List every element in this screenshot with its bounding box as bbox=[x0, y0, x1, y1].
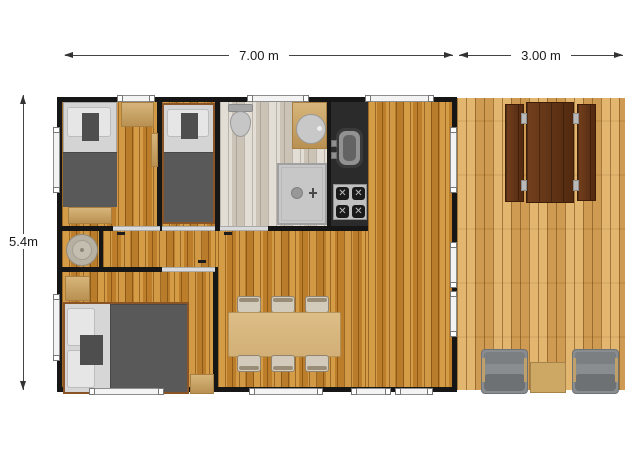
living-floor-right bbox=[368, 102, 452, 387]
dining-chair bbox=[237, 296, 261, 313]
burner bbox=[352, 205, 365, 218]
wall-closet bbox=[99, 231, 103, 267]
wall-table bbox=[121, 102, 154, 127]
window-bottom-bedroom-double bbox=[90, 388, 163, 395]
stove-4-burner bbox=[333, 184, 367, 220]
nightstand bbox=[190, 374, 214, 394]
picnic-bracket bbox=[573, 113, 579, 124]
door-bathroom bbox=[220, 226, 268, 231]
armchair-back bbox=[575, 352, 616, 364]
dimension-label-height: 5.4m bbox=[1, 234, 46, 249]
arrow-up-icon bbox=[20, 95, 26, 104]
water-heater-cap bbox=[80, 248, 84, 252]
glazed-door-right-top bbox=[450, 128, 457, 192]
window-bottom-living-3 bbox=[396, 388, 432, 395]
sink-faucet bbox=[331, 140, 337, 147]
arrow-down-icon bbox=[20, 381, 26, 390]
armchair-back bbox=[484, 352, 525, 364]
arrow-left-icon bbox=[459, 52, 468, 58]
armchair-seat bbox=[484, 374, 525, 391]
window-top-living bbox=[366, 95, 433, 102]
window-top-bedroom-twin bbox=[118, 95, 154, 102]
shower-drain bbox=[291, 187, 303, 199]
sink-faucet bbox=[331, 152, 337, 159]
dining-chair bbox=[237, 355, 261, 372]
armchair-seat bbox=[575, 374, 616, 391]
burner bbox=[336, 187, 349, 200]
sliding-door-panel-1 bbox=[450, 243, 457, 287]
bed-cushion bbox=[181, 113, 198, 139]
toilet bbox=[228, 104, 253, 138]
burner bbox=[352, 187, 365, 200]
deck-armchair-right bbox=[572, 349, 619, 394]
water-heater bbox=[66, 234, 98, 266]
bed-blanket bbox=[164, 152, 213, 222]
door-bedroom-twin bbox=[113, 226, 160, 231]
double-bed bbox=[63, 302, 189, 394]
armchair-wood-arm bbox=[482, 358, 485, 382]
window-bottom-living bbox=[250, 388, 322, 395]
wall-bedroom-double-right bbox=[213, 272, 218, 387]
picnic-bench-right bbox=[577, 104, 596, 201]
bed-cushion bbox=[82, 113, 99, 141]
dimension-label-width-deck: 3.00 m bbox=[511, 48, 571, 63]
window-top-bathroom bbox=[248, 95, 308, 102]
basin-drain bbox=[317, 126, 322, 131]
dining-chair bbox=[305, 296, 329, 313]
window-left-bedroom-twin bbox=[53, 128, 60, 192]
single-bed-right bbox=[162, 103, 215, 224]
door-bedroom-single bbox=[162, 226, 215, 231]
arrow-left-icon bbox=[64, 52, 73, 58]
window-bottom-living-2 bbox=[352, 388, 390, 395]
dining-chair bbox=[271, 355, 295, 372]
picnic-table-top bbox=[526, 102, 574, 203]
kitchen-sink bbox=[336, 128, 363, 168]
single-bed-left bbox=[63, 102, 117, 207]
arrow-right-icon bbox=[614, 52, 623, 58]
dimension-label-width-main: 7.00 m bbox=[229, 48, 289, 63]
bed-blanket bbox=[110, 304, 187, 392]
armchair-wood-arm bbox=[573, 358, 576, 382]
arrow-right-icon bbox=[444, 52, 453, 58]
door-swing-mark bbox=[198, 260, 206, 263]
sliding-door-panel-2 bbox=[450, 292, 457, 336]
armchair-wood-arm bbox=[524, 358, 527, 382]
dining-chair bbox=[271, 296, 295, 313]
wall-single-bathroom bbox=[215, 102, 220, 226]
bed-cushion bbox=[80, 335, 103, 365]
shower bbox=[277, 163, 327, 225]
bed-blanket bbox=[63, 152, 117, 207]
burner bbox=[336, 205, 349, 218]
dining-table bbox=[228, 312, 341, 357]
picnic-bracket bbox=[573, 180, 579, 191]
sink-basin bbox=[343, 135, 356, 161]
door-swing-mark bbox=[224, 232, 232, 235]
window-left-bedroom-double bbox=[53, 295, 60, 360]
wall-bathroom-kitchen bbox=[327, 102, 331, 226]
deck-side-table bbox=[530, 362, 566, 393]
deck-armchair-left bbox=[481, 349, 528, 394]
picnic-bracket bbox=[521, 113, 527, 124]
door-swing-mark bbox=[117, 232, 125, 235]
picnic-bracket bbox=[521, 180, 527, 191]
shower-faucet-handle bbox=[312, 188, 314, 198]
armchair-wood-arm bbox=[615, 358, 618, 382]
door-bedroom-double bbox=[162, 267, 215, 272]
bed-end-bench bbox=[68, 207, 112, 224]
dining-chair bbox=[305, 355, 329, 372]
nightstand bbox=[65, 276, 90, 301]
floor-plan-canvas: 7.00 m 3.00 m 5.4m bbox=[0, 0, 640, 452]
toilet-bowl bbox=[230, 111, 251, 137]
wall-shelf bbox=[151, 133, 158, 167]
